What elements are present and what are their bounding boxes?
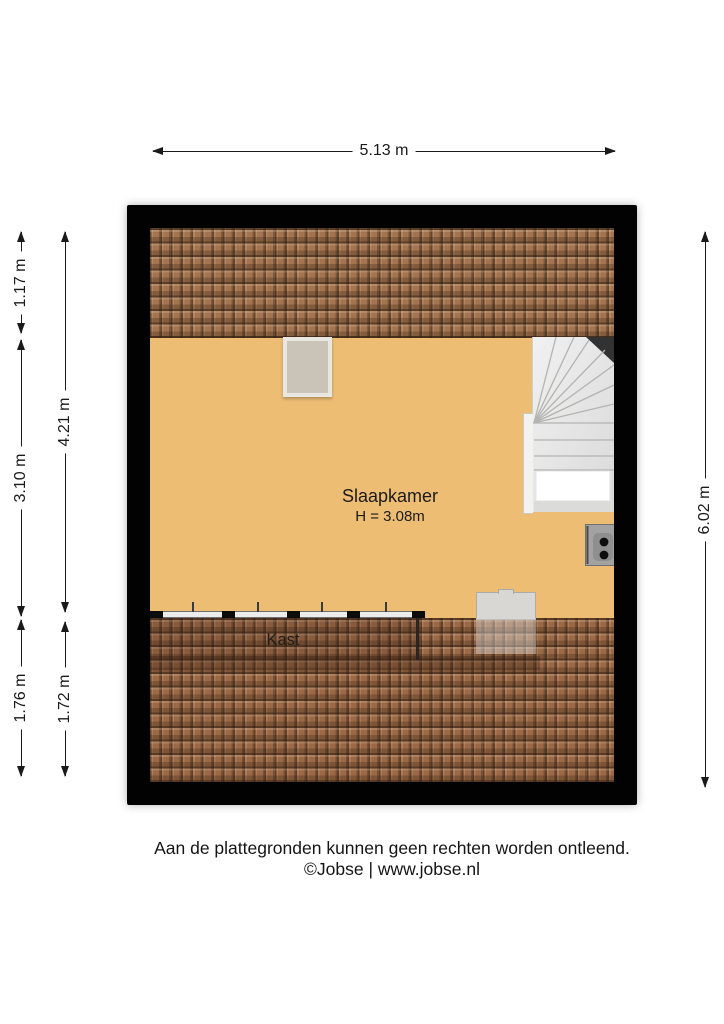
- railing-segment: [287, 611, 300, 618]
- connection-dot: [600, 538, 609, 547]
- room-label: Slaapkamer H = 3.08m: [290, 485, 490, 527]
- floorplan-interior: Slaapkamer H = 3.08m Kast: [150, 228, 614, 782]
- boiler-unit: [585, 524, 614, 566]
- arrow-down-icon: [61, 602, 69, 613]
- dimension-label: 6.02 m: [696, 478, 714, 541]
- closet-divider-wall: [416, 618, 419, 660]
- disclaimer: Aan de plattegronden kunnen geen rechten…: [60, 838, 724, 880]
- arrow-down-icon: [701, 777, 709, 788]
- floorplan-page: { "colors": { "wall": "#020202", "floor"…: [0, 0, 724, 1024]
- chimney-block: [283, 337, 332, 397]
- arrow-up-icon: [61, 231, 69, 242]
- closet-label: Kast: [253, 631, 313, 650]
- staircase: [532, 337, 614, 512]
- dimension-label: 1.17 m: [12, 251, 30, 314]
- arrow-down-icon: [17, 766, 25, 777]
- arrow-down-icon: [17, 323, 25, 334]
- dimension-label: 4.21 m: [56, 391, 74, 454]
- disclaimer-text: Aan de plattegronden kunnen geen rechten…: [60, 838, 724, 859]
- arrow-right-icon: [605, 147, 616, 155]
- copyright-text: ©Jobse | www.jobse.nl: [60, 859, 724, 880]
- dimension-label: 1.76 m: [12, 667, 30, 730]
- dimension-label: 5.13 m: [353, 142, 416, 160]
- connection-dot: [600, 551, 609, 560]
- arrow-up-icon: [17, 619, 25, 630]
- room-ceiling-height: H = 3.08m: [290, 507, 490, 527]
- arrow-up-icon: [17, 231, 25, 242]
- arrow-down-icon: [17, 606, 25, 617]
- cabinet-furniture: [476, 592, 536, 620]
- arrow-left-icon: [152, 147, 163, 155]
- railing-post-icon: [257, 602, 259, 612]
- stair-side-wall: [523, 413, 533, 514]
- railing-segment: [412, 611, 425, 618]
- cabinet-handle: [498, 589, 514, 594]
- room-name: Slaapkamer: [290, 485, 490, 507]
- railing-post-icon: [385, 602, 387, 612]
- railing-segment: [347, 611, 360, 618]
- cabinet-under-roof: [476, 618, 536, 654]
- arrow-up-icon: [17, 339, 25, 350]
- arrow-up-icon: [701, 231, 709, 242]
- stair-opening: [536, 471, 610, 501]
- arrow-up-icon: [61, 621, 69, 632]
- dimension-label: 1.72 m: [56, 668, 74, 731]
- railing-post-icon: [321, 602, 323, 612]
- roof-shadow-band: [150, 656, 540, 670]
- railing-segment: [150, 611, 163, 618]
- roof-slope-top: [150, 228, 614, 338]
- railing-segment: [222, 611, 235, 618]
- dimension-label: 3.10 m: [12, 447, 30, 510]
- closet-knee-wall: [150, 611, 425, 618]
- railing-post-icon: [192, 602, 194, 612]
- arrow-down-icon: [61, 766, 69, 777]
